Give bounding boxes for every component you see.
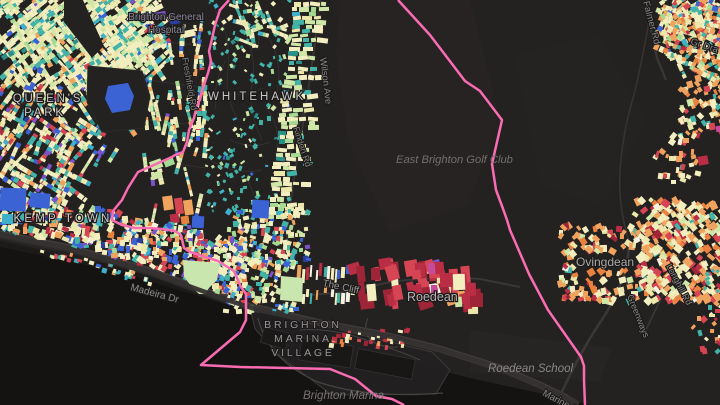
svg-text:Ovingdean: Ovingdean bbox=[576, 255, 634, 269]
svg-text:WHITEHAWK: WHITEHAWK bbox=[208, 91, 306, 103]
svg-text:East Brighton Golf Club: East Brighton Golf Club bbox=[396, 154, 513, 166]
svg-text:VILLAGE: VILLAGE bbox=[271, 347, 334, 359]
svg-text:QUEEN'S: QUEEN'S bbox=[13, 93, 83, 105]
svg-text:PARK: PARK bbox=[24, 107, 66, 119]
svg-text:KEMP TOWN: KEMP TOWN bbox=[13, 213, 112, 225]
svg-text:Hospital: Hospital bbox=[148, 25, 184, 36]
svg-text:MARINA: MARINA bbox=[274, 333, 332, 345]
svg-text:Brighton Marina: Brighton Marina bbox=[303, 390, 384, 402]
svg-text:BRIGHTON: BRIGHTON bbox=[264, 319, 342, 331]
svg-text:Brighton General: Brighton General bbox=[128, 12, 204, 23]
svg-text:Roedean School: Roedean School bbox=[488, 363, 573, 375]
svg-text:Roedean: Roedean bbox=[407, 290, 458, 304]
